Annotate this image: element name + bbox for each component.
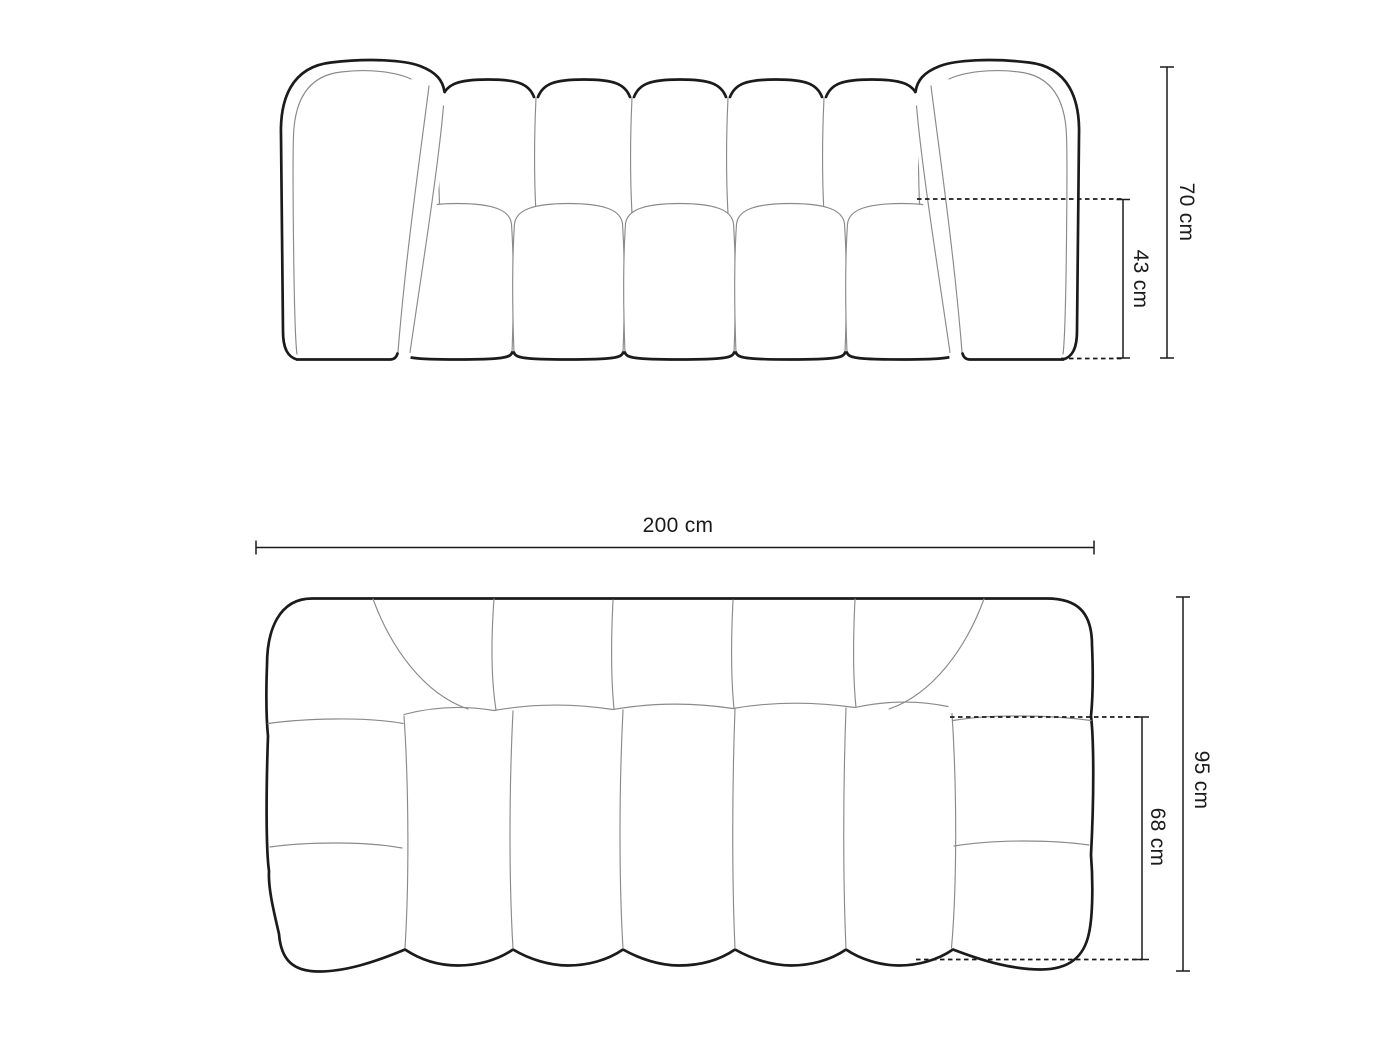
top-view-outer-silhouette <box>266 599 1093 972</box>
top-dim-total-depth-line <box>1176 597 1190 971</box>
dimension-label-total-depth: 95 cm <box>1189 751 1213 810</box>
diagram-canvas: 70 cm 43 cm 200 cm 95 cm 68 cm <box>0 0 1399 1049</box>
dimension-label-total-width: 200 cm <box>643 514 714 538</box>
top-dim-total-width-line <box>256 541 1094 555</box>
top-plan-view <box>266 599 1093 972</box>
back-cushion-seam <box>631 98 633 214</box>
back-cushion-seam <box>823 98 825 214</box>
front-dim-total-height-line <box>1160 67 1174 358</box>
front-elevation-view <box>281 60 1079 360</box>
seat-cushion <box>513 204 625 360</box>
front-back-cushions <box>439 80 921 217</box>
front-seat-cushions <box>402 204 958 360</box>
back-cushion-seam <box>535 98 537 214</box>
dimension-label-seat-depth: 68 cm <box>1145 808 1169 867</box>
dimension-label-seat-height: 43 cm <box>1128 250 1152 309</box>
back-cushion-seam <box>727 98 729 214</box>
seat-cushion <box>624 204 736 360</box>
dimension-label-total-height: 70 cm <box>1174 183 1198 242</box>
seat-cushion <box>735 204 847 360</box>
